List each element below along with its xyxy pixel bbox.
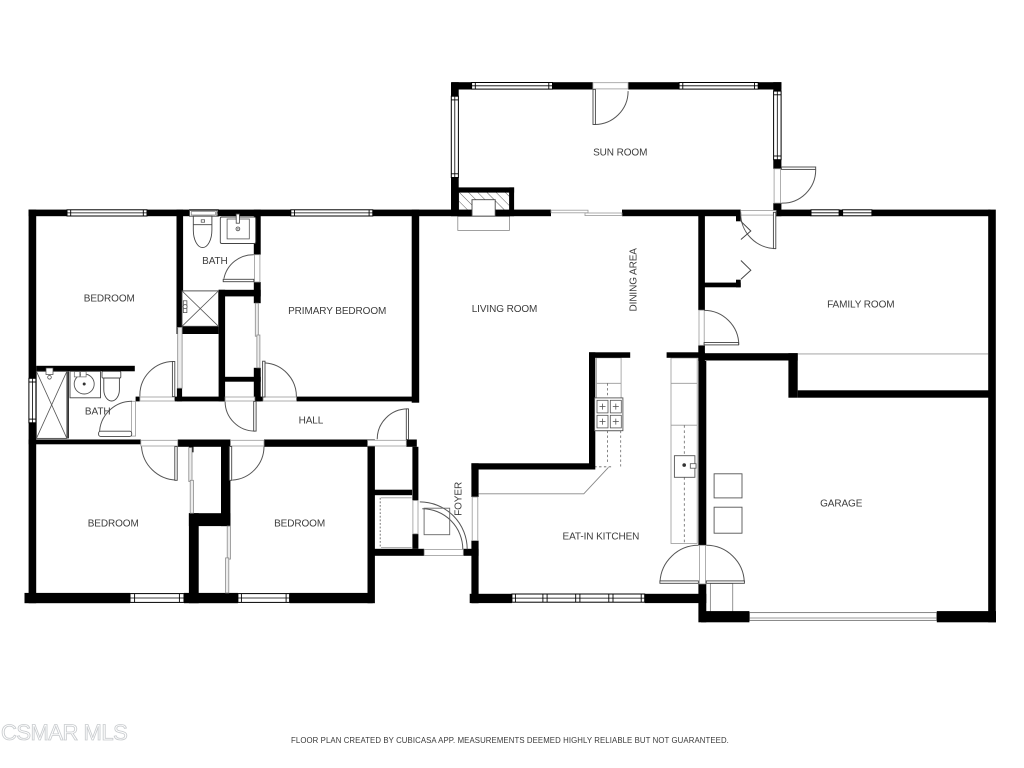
svg-text:FLOOR PLAN CREATED BY CUBICASA: FLOOR PLAN CREATED BY CUBICASA APP. MEAS… bbox=[291, 736, 729, 745]
svg-text:PRIMARY BEDROOM: PRIMARY BEDROOM bbox=[288, 306, 386, 317]
svg-text:BATH: BATH bbox=[202, 256, 228, 267]
svg-text:FOYER: FOYER bbox=[454, 482, 465, 516]
svg-text:EAT-IN KITCHEN: EAT-IN KITCHEN bbox=[563, 532, 640, 543]
svg-text:FAMILY ROOM: FAMILY ROOM bbox=[827, 300, 894, 311]
svg-text:BEDROOM: BEDROOM bbox=[84, 294, 135, 305]
svg-text:LIVING ROOM: LIVING ROOM bbox=[472, 304, 538, 315]
svg-text:CSMAR MLS: CSMAR MLS bbox=[1, 720, 127, 745]
svg-text:BATH: BATH bbox=[85, 407, 111, 418]
svg-text:BEDROOM: BEDROOM bbox=[88, 518, 139, 529]
svg-text:SUN ROOM: SUN ROOM bbox=[593, 148, 647, 159]
svg-text:HALL: HALL bbox=[299, 415, 324, 426]
svg-text:BEDROOM: BEDROOM bbox=[274, 518, 325, 529]
svg-text:GARAGE: GARAGE bbox=[820, 498, 863, 509]
svg-text:DINING AREA: DINING AREA bbox=[628, 248, 639, 312]
